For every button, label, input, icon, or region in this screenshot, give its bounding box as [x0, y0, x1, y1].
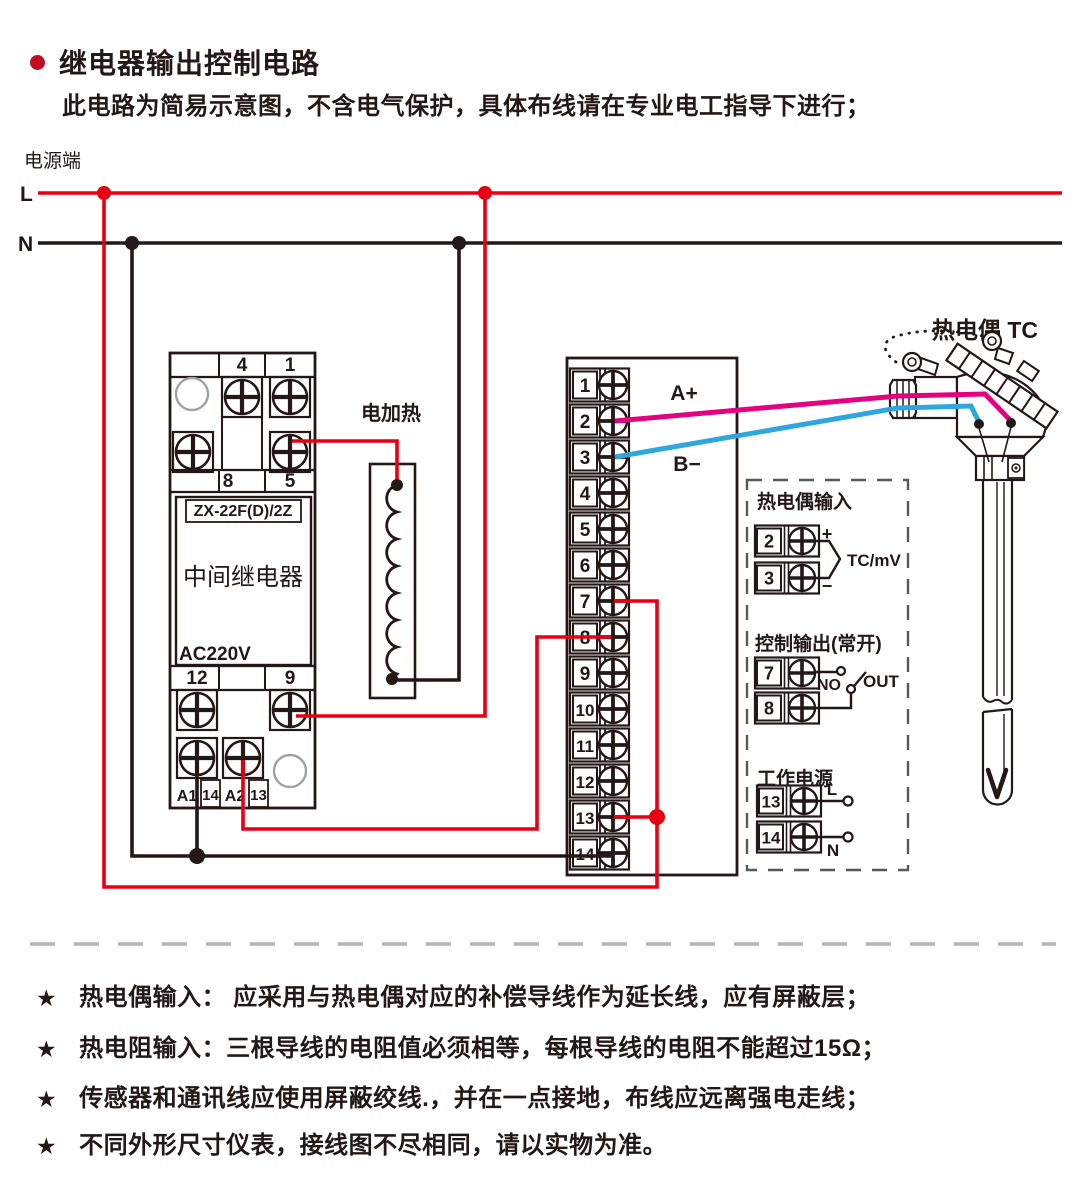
terminal-9: 9	[580, 664, 591, 685]
tc-plus: +	[822, 524, 833, 544]
relay-terminal-14: 14	[202, 787, 219, 804]
no-label: NO	[817, 677, 841, 694]
relay-terminal-12: 12	[186, 668, 207, 689]
contact-fixed	[837, 667, 845, 675]
terminal-11: 11	[576, 737, 594, 756]
note-2: ★ 热电阻输入：三根导线的电阻值必须相等，每根导线的电阻不能超过15Ω；	[36, 1034, 886, 1064]
relay-lamp-bottom	[274, 755, 306, 787]
star-icon: ★	[36, 1034, 57, 1064]
a-plus-label: A+	[670, 382, 697, 405]
relay: 4 1 8 5 12 9 A1 14 A2 13 ZX-22F(D)/2Z 中间…	[170, 353, 315, 808]
relay-terminal-4: 4	[237, 355, 248, 376]
panel-n-label: N	[827, 841, 839, 860]
power-n-terminal	[844, 833, 853, 842]
power-source-label: 电源端	[24, 150, 81, 172]
power-l-terminal	[844, 797, 853, 806]
power-rails: 电源端 L N	[18, 150, 1062, 256]
relay-screw-12	[180, 693, 214, 727]
terminal-6: 6	[580, 556, 591, 577]
wiring-diagram: 电源端 L N	[0, 0, 1080, 1195]
relay-terminal-1: 1	[285, 355, 296, 376]
panel-terminal-14: 14	[762, 829, 781, 848]
hinge-screw-icon	[903, 353, 921, 371]
terminal-5: 5	[580, 520, 591, 541]
star-icon: ★	[36, 1131, 57, 1161]
terminal-12: 12	[576, 773, 595, 792]
panel-terminal-3: 3	[764, 569, 774, 589]
page: 继电器输出控制电路 此电路为简易示意图，不含电气保护，具体布线请在专业电工指导下…	[0, 0, 1080, 1195]
heater-label: 电加热	[361, 402, 421, 425]
star-icon: ★	[36, 1084, 57, 1114]
terminal-4: 4	[580, 484, 591, 505]
b-minus-label: B−	[673, 453, 700, 476]
note-1: ★ 热电偶输入： 应采用与热电偶对应的补偿导线作为延长线，应有屏蔽层；	[36, 983, 870, 1013]
panel-terminal-8: 8	[764, 699, 774, 719]
probe-v-mark	[988, 770, 1006, 797]
relay-screw-8	[176, 435, 210, 469]
cap-screw-icon	[983, 332, 1001, 350]
star-icon: ★	[36, 983, 57, 1013]
neck	[957, 437, 1043, 456]
terminal-13: 13	[576, 809, 595, 828]
panel-terminal-13: 13	[762, 793, 781, 812]
relay-lamp-top	[176, 378, 208, 410]
option-panel: 热电偶输入 2 3 + − TC/mV 控制输出(常开) 7 8 NO OUT …	[747, 480, 908, 870]
heater: 电加热	[361, 402, 421, 698]
panel-terminal-7: 7	[764, 664, 774, 684]
terminal-10: 10	[576, 701, 595, 720]
instrument: 1 2 3 4 5 6 7 8 9 10 11 12 13 14 A+ B−	[567, 358, 737, 875]
line-l-label: L	[20, 183, 33, 206]
out-label: OUT	[863, 672, 900, 691]
terminal-3: 3	[580, 448, 591, 469]
note-3: ★ 传感器和通讯线应使用屏蔽绞线.，并在一点接地，布线应远离强电走线；	[36, 1084, 870, 1114]
terminal-1: 1	[580, 376, 591, 397]
terminal-7: 7	[580, 592, 591, 613]
relay-name: 中间继电器	[183, 564, 303, 591]
relay-terminal-8: 8	[223, 471, 234, 492]
contact-moving	[847, 685, 855, 693]
thermocouple: 热电偶 TC	[885, 317, 1057, 805]
relay-screw-1	[273, 380, 307, 414]
panel-terminal-2: 2	[764, 532, 774, 552]
terminal-2: 2	[580, 412, 591, 433]
relay-terminal-9: 9	[285, 668, 296, 689]
panel-l-label: L	[827, 780, 837, 799]
relay-screw-4	[225, 380, 259, 414]
control-output-title: 控制输出(常开)	[755, 632, 882, 655]
relay-terminal-5: 5	[285, 471, 296, 492]
relay-screw-9	[273, 693, 307, 727]
tc-signal-label: TC/mV	[847, 551, 902, 570]
tc-minus: −	[822, 576, 833, 596]
relay-terminal-a1: A1	[177, 788, 198, 805]
relay-voltage: AC220V	[179, 644, 251, 665]
line-n-label: N	[18, 233, 33, 256]
relay-terminal-13: 13	[250, 787, 267, 804]
tc-input-title: 热电偶输入	[757, 490, 852, 513]
relay-model: ZX-22F(D)/2Z	[194, 503, 293, 520]
note-4: ★ 不同外形尺寸仪表，接线图不尽相同，请以实物为准。	[36, 1131, 667, 1161]
